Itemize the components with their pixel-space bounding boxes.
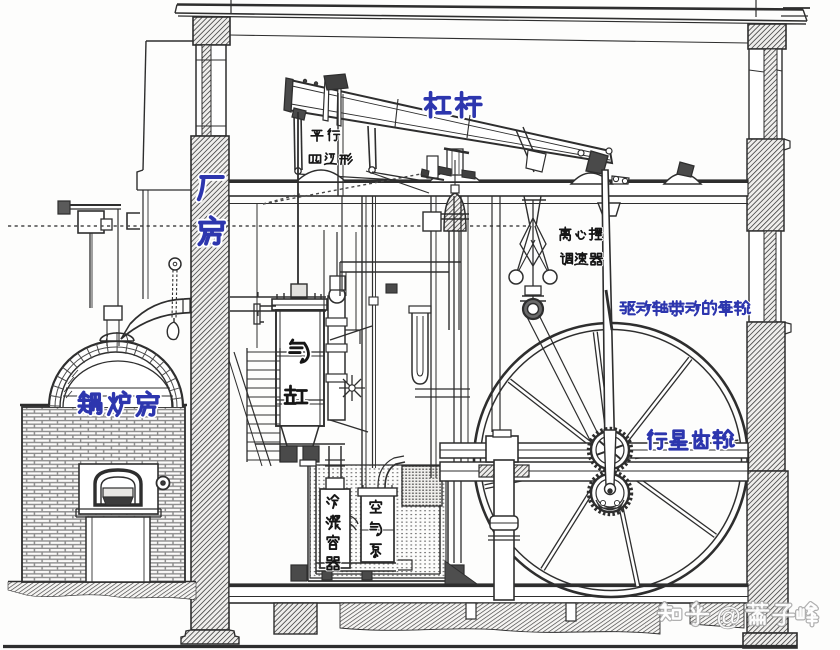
- svg-text:@: @: [716, 603, 741, 631]
